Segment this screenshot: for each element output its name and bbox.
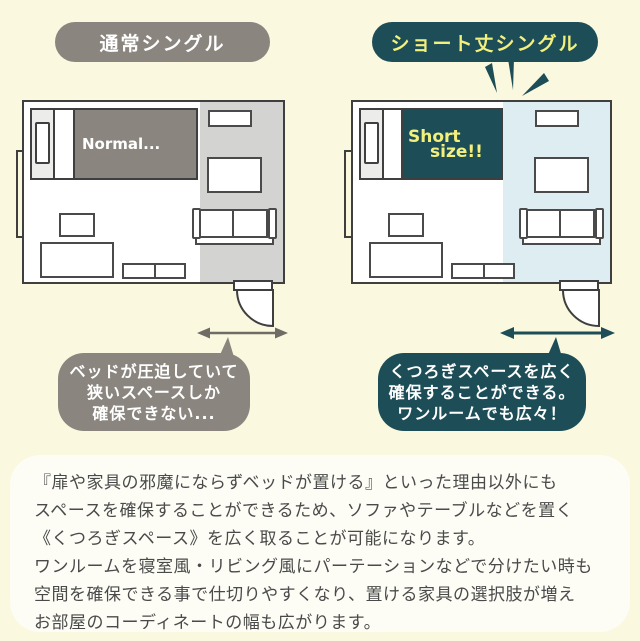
description-line: 『扉や家具の邪魔にならずベッドが置ける』といった理由以外にも — [34, 469, 618, 497]
description-line: スペースを確保することができるため、ソファやテーブルなどを置く — [34, 497, 618, 525]
normal-single-badge: 通常シングル — [55, 22, 270, 62]
emphasis-sparkle-icon — [485, 58, 549, 96]
side-table — [59, 213, 95, 237]
bed-size-label-normal: Normal... — [75, 110, 196, 178]
door-icon-left-room — [234, 281, 273, 326]
short-single-badge: ショート丈シングル — [372, 22, 598, 62]
bubble-line: 確保できない... — [92, 403, 215, 424]
narrow-space-arrow-icon — [197, 328, 288, 339]
tv-stand — [122, 263, 186, 279]
description-text: 『扉や家具の邪魔にならずベッドが置ける』といった理由以外にも スペースを確保する… — [34, 469, 618, 637]
description-line: お部屋のコーディネートの幅も広がります。 — [34, 609, 618, 637]
side-table — [388, 213, 424, 237]
shelf — [208, 110, 252, 127]
sofa-cushion — [559, 209, 595, 238]
normal-single-badge-label: 通常シングル — [99, 29, 225, 56]
sofa — [192, 208, 277, 245]
bubble-line: ワンルームでも広々！ — [397, 403, 567, 424]
table-large — [534, 157, 589, 193]
tv-stand-divider — [154, 265, 156, 277]
sofa-cushion — [232, 209, 268, 238]
description-line: 空間を確保できる事で仕切りやすくなり、置ける家具の選択肢が増え — [34, 581, 618, 609]
desk — [369, 242, 443, 278]
shelf — [535, 110, 579, 127]
short-bed-comparison-infographic: 通常シングル ショート丈シングル Normal... — [0, 0, 640, 641]
description-line: 《くつろぎスペース》を広く取ることが可能になります。 — [34, 525, 618, 553]
bubble-line: 狭いスペースしか — [87, 382, 221, 403]
floorplan-normal-single: Normal... — [22, 100, 285, 284]
door-icon-right-room — [560, 281, 599, 326]
desk — [40, 242, 114, 278]
bed-size-label-line2: size!! — [408, 145, 483, 160]
bed-pillow — [35, 122, 50, 164]
sofa-cushion — [199, 209, 234, 238]
sofa — [519, 208, 604, 245]
description-line: ワンルームを寝室風・リビング風にパーテーションなどで分けたい時も — [34, 553, 618, 581]
bubble-line: ベッドが圧迫していて — [69, 361, 238, 382]
sofa-cushion — [526, 209, 561, 238]
sofa-armrest — [268, 208, 277, 239]
short-benefit-bubble: くつろぎスペースを広く 確保することができる。 ワンルームでも広々！ — [378, 353, 586, 431]
table-large — [207, 157, 262, 193]
bubble-line: くつろぎスペースを広く — [389, 361, 574, 382]
normal-complaint-bubble: ベッドが圧迫していて 狭いスペースしか 確保できない... — [58, 353, 250, 431]
description-card: 『扉や家具の邪魔にならずベッドが置ける』といった理由以外にも スペースを確保する… — [10, 455, 630, 632]
bed-normal-single: Normal... — [30, 108, 198, 180]
bed-pillow — [364, 122, 379, 164]
tv-stand-divider — [483, 265, 485, 277]
bubble-line: 確保することができる。 — [389, 382, 576, 403]
wide-space-arrow-icon — [500, 327, 615, 339]
tv-stand — [451, 263, 515, 279]
floorplan-short-single: Short size!! — [351, 100, 612, 284]
bed-blanket-short: Short size!! — [401, 110, 501, 178]
bed-size-label-short: Short size!! — [403, 110, 501, 178]
bed-blanket-normal: Normal... — [73, 110, 196, 178]
sofa-armrest — [595, 208, 604, 239]
bed-short-single: Short size!! — [359, 108, 503, 180]
short-single-badge-label: ショート丈シングル — [390, 29, 579, 56]
